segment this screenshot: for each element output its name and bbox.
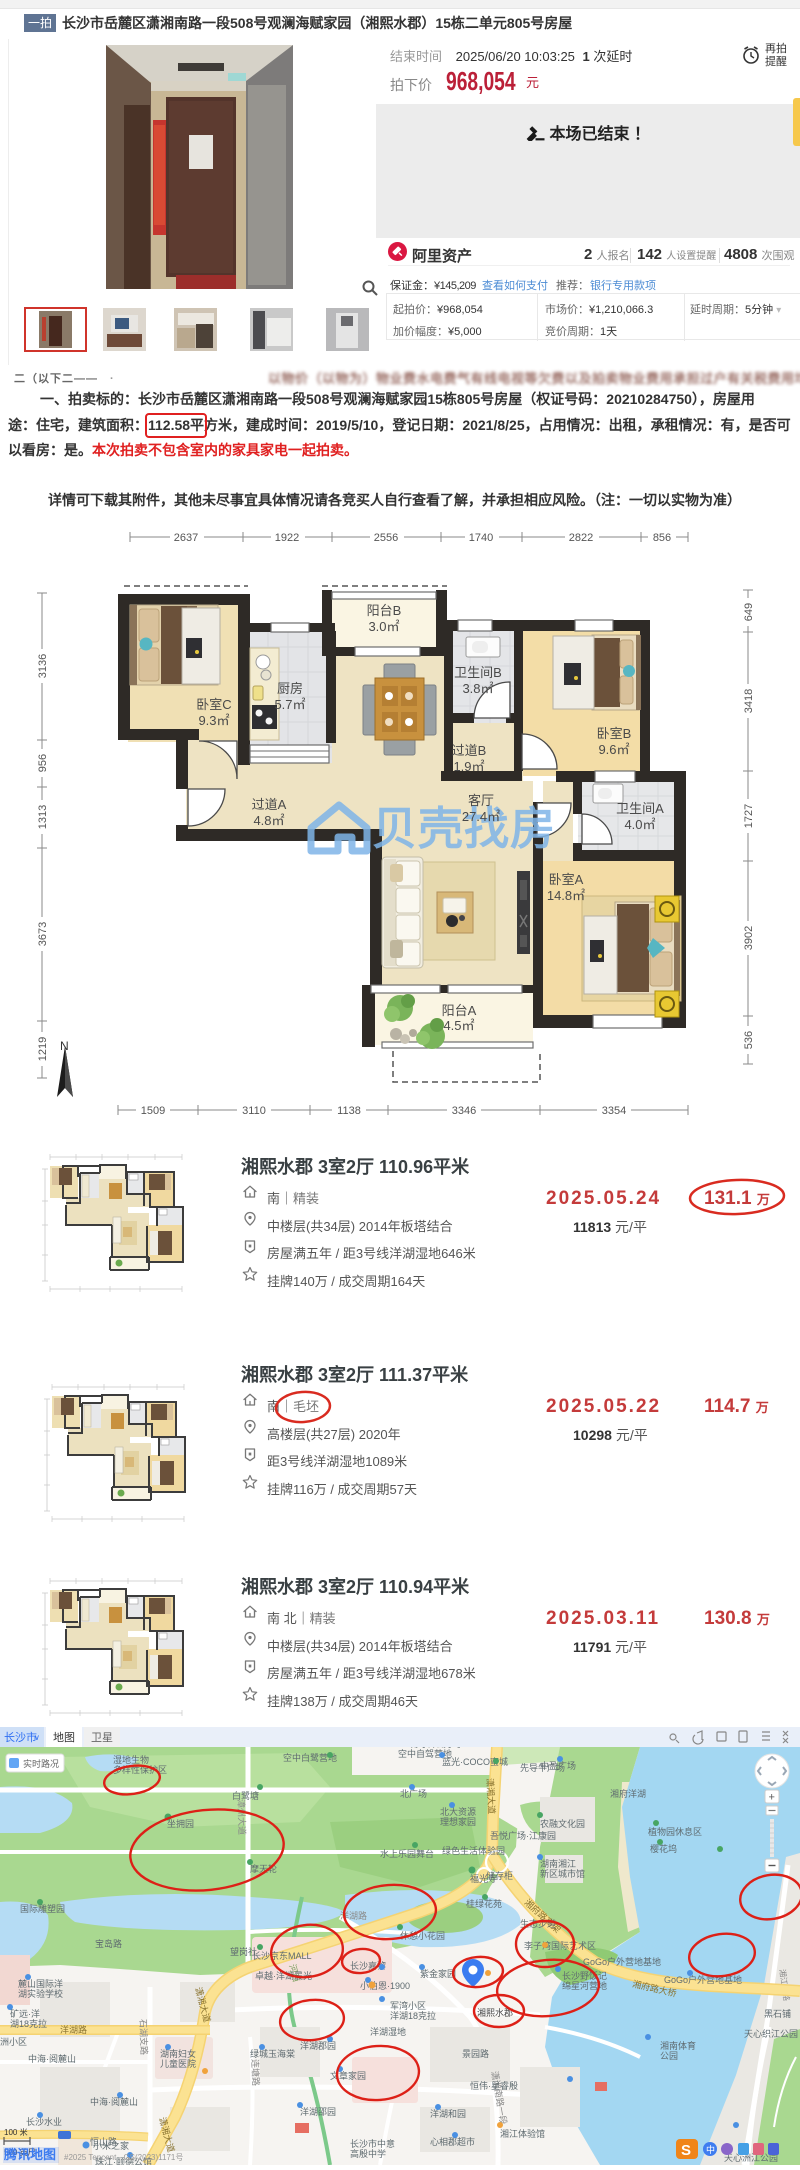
svg-text:绵星河营地: 绵星河营地 — [562, 1980, 607, 1991]
svg-text:恒山路: 恒山路 — [90, 2136, 117, 2147]
svg-text:+: + — [769, 1792, 775, 1804]
svg-text:131.1 万: 131.1 万 — [704, 1188, 770, 1209]
svg-text:3902: 3902 — [743, 926, 755, 950]
svg-text:114.7 万: 114.7 万 — [704, 1396, 769, 1417]
svg-text:10298 元/平: 10298 元/平 — [573, 1427, 648, 1443]
svg-text:军湾小区: 军湾小区 — [390, 2000, 426, 2011]
svg-text:9.3㎡: 9.3㎡ — [198, 713, 229, 728]
svg-text:湘熙水郡 3室2厅 110.94平米: 湘熙水郡 3室2厅 110.94平米 — [241, 1576, 470, 1597]
svg-text:3.8㎡: 3.8㎡ — [462, 681, 493, 696]
svg-text:卧室C: 卧室C — [196, 697, 231, 712]
svg-text:挂牌140万 / 成交周期164天: 挂牌140万 / 成交周期164天 — [267, 1274, 425, 1289]
svg-text:5.7㎡: 5.7㎡ — [274, 697, 305, 712]
svg-text:4.0㎡: 4.0㎡ — [624, 817, 655, 832]
svg-text:文章家园: 文章家园 — [330, 2070, 366, 2081]
svg-text:绿色生活体验园: 绿色生活体验园 — [442, 1845, 505, 1856]
svg-text:S: S — [681, 2142, 691, 2159]
svg-text:中: 中 — [706, 2144, 715, 2155]
svg-text:湖南妇女: 湖南妇女 — [160, 2048, 196, 2059]
svg-text:536: 536 — [743, 1031, 755, 1049]
svg-text:中海·阅麓山: 中海·阅麓山 — [90, 2096, 138, 2107]
svg-text:11791 元/平: 11791 元/平 — [573, 1639, 647, 1655]
svg-text:新区城市馆: 新区城市馆 — [540, 1868, 585, 1879]
svg-text:2637: 2637 — [174, 532, 198, 544]
svg-text:11813 元/平: 11813 元/平 — [573, 1219, 647, 1235]
svg-text:绿城玉海棠: 绿城玉海棠 — [250, 2048, 295, 2059]
svg-text:湘南体育: 湘南体育 — [660, 2040, 696, 2051]
svg-text:潇湘大道: 潇湘大道 — [485, 1778, 498, 1815]
svg-text:南｜毛坯: 南｜毛坯 — [267, 1399, 319, 1414]
svg-text:矿远·洋: 矿远·洋 — [10, 2008, 40, 2019]
svg-text:洲小区: 洲小区 — [0, 2037, 27, 2047]
svg-text:卫生间B: 卫生间B — [454, 665, 502, 680]
svg-text:∨: ∨ — [34, 1733, 40, 1742]
svg-text:湿地生物: 湿地生物 — [113, 1754, 149, 1765]
svg-text:中楼层(共34层) 2014年板塔结合: 中楼层(共34层) 2014年板塔结合 — [267, 1219, 453, 1234]
svg-text:洋湖18克拉: 洋湖18克拉 — [390, 2010, 436, 2021]
svg-text:1922: 1922 — [275, 532, 299, 544]
svg-text:湘府洋湖: 湘府洋湖 — [610, 1788, 646, 1799]
svg-text:GoGo户外营地基地: GoGo户外营地基地 — [583, 1956, 661, 1967]
svg-text:房屋满五年 / 距3号线洋湖湿地646米: 房屋满五年 / 距3号线洋湖湿地646米 — [267, 1246, 476, 1261]
svg-text:湘江体验馆: 湘江体验馆 — [500, 2128, 545, 2139]
svg-text:3110: 3110 — [242, 1105, 266, 1117]
svg-text:水上乐园舞台: 水上乐园舞台 — [380, 1848, 434, 1859]
svg-text:956: 956 — [37, 754, 49, 772]
svg-text:植物园休息区: 植物园休息区 — [648, 1826, 702, 1837]
svg-text:儿童医院: 儿童医院 — [160, 2058, 196, 2069]
svg-text:856: 856 — [653, 532, 671, 544]
svg-text:2822: 2822 — [569, 532, 593, 544]
svg-text:李子湾国际艺术区: 李子湾国际艺术区 — [524, 1940, 596, 1951]
svg-text:3354: 3354 — [602, 1105, 626, 1117]
svg-text:卫星: 卫星 — [91, 1731, 113, 1744]
svg-text:1509: 1509 — [141, 1105, 165, 1117]
svg-text:长沙野饭记: 长沙野饭记 — [562, 1970, 607, 1981]
svg-text:心相郡超市: 心相郡超市 — [430, 2136, 475, 2147]
svg-text:卧室A: 卧室A — [549, 872, 584, 887]
svg-text:黑石铺: 黑石铺 — [764, 2008, 791, 2019]
svg-text:理想家园: 理想家园 — [440, 1816, 476, 1827]
svg-text:洋湖和园: 洋湖和园 — [430, 2108, 466, 2119]
svg-text:湖南湘江: 湖南湘江 — [540, 1858, 576, 1869]
svg-text:2025.05.24: 2025.05.24 — [546, 1188, 661, 1209]
svg-text:南｜精装: 南｜精装 — [267, 1191, 319, 1206]
svg-text:高楼层(共27层) 2020年: 高楼层(共27层) 2020年 — [267, 1427, 401, 1442]
svg-text:公园: 公园 — [660, 2051, 678, 2061]
svg-text:3673: 3673 — [37, 922, 49, 946]
svg-text:1727: 1727 — [743, 804, 755, 828]
svg-text:储存柜: 储存柜 — [486, 1870, 513, 1881]
svg-text:1219: 1219 — [37, 1037, 49, 1061]
svg-text:中楼层(共34层) 2014年板塔结合: 中楼层(共34层) 2014年板塔结合 — [267, 1639, 453, 1654]
svg-text:3136: 3136 — [37, 654, 49, 678]
svg-text:2025.05.22: 2025.05.22 — [546, 1396, 661, 1417]
svg-text:1740: 1740 — [469, 532, 493, 544]
svg-text:房屋满五年 / 距3号线洋湖湿地678米: 房屋满五年 / 距3号线洋湖湿地678米 — [267, 1666, 476, 1681]
svg-text:洋湖路: 洋湖路 — [60, 2024, 87, 2035]
svg-text:4.5㎡: 4.5㎡ — [443, 1018, 474, 1033]
svg-text:客厅: 客厅 — [468, 793, 494, 808]
svg-text:3418: 3418 — [743, 689, 755, 713]
svg-text:吾悦广场·江康园: 吾悦广场·江康园 — [490, 1830, 556, 1841]
svg-text:130.8 万: 130.8 万 — [704, 1608, 770, 1629]
svg-text:100 米: 100 米 — [4, 2127, 28, 2137]
svg-text:高殷中学: 高殷中学 — [350, 2148, 386, 2159]
svg-text:1313: 1313 — [37, 805, 49, 829]
svg-text:恒伟·星睿殷: 恒伟·星睿殷 — [470, 2080, 518, 2091]
svg-text:北大资源: 北大资源 — [440, 1806, 476, 1817]
svg-text:过道A: 过道A — [252, 797, 287, 812]
svg-text:国际雕塑园: 国际雕塑园 — [20, 1903, 65, 1914]
svg-text:14.8㎡: 14.8㎡ — [547, 888, 585, 903]
svg-text:长沙市: 长沙市 — [4, 1730, 37, 1744]
svg-text:漳州大道: 漳州大道 — [236, 1799, 248, 1835]
svg-text:坐拥园: 坐拥园 — [167, 1818, 194, 1829]
svg-text:厨房: 厨房 — [277, 681, 303, 696]
svg-text:长沙京东MALL: 长沙京东MALL — [252, 1950, 312, 1961]
svg-text:卫生间A: 卫生间A — [616, 801, 664, 816]
svg-text:北广场: 北广场 — [400, 1788, 427, 1799]
svg-text:距3号线洋湖湿地1089米: 距3号线洋湖湿地1089米 — [267, 1454, 407, 1469]
svg-text:长沙市中意: 长沙市中意 — [350, 2138, 395, 2149]
svg-text:2556: 2556 — [374, 532, 398, 544]
svg-text:挂牌116万 / 成交周期57天: 挂牌116万 / 成交周期57天 — [267, 1482, 417, 1497]
svg-text:1138: 1138 — [337, 1105, 361, 1117]
svg-text:石湖支路: 石湖支路 — [138, 2019, 150, 2055]
svg-text:4.8㎡: 4.8㎡ — [253, 813, 284, 828]
svg-text:紫金家园: 紫金家园 — [420, 1968, 456, 1979]
svg-text:景园路: 景园路 — [462, 2048, 489, 2059]
svg-text:649: 649 — [743, 603, 755, 621]
svg-text:湘熙水郡 3室2厅 111.37平米: 湘熙水郡 3室2厅 111.37平米 — [241, 1364, 469, 1385]
svg-text:过道B: 过道B — [452, 743, 487, 758]
svg-text:#2025 Tencent - GS(2023)1171号: #2025 Tencent - GS(2023)1171号 — [64, 2153, 183, 2162]
svg-text:农融文化园: 农融文化园 — [540, 1818, 585, 1829]
svg-text:连塘路: 连塘路 — [250, 2059, 262, 2086]
svg-text:中盈广场: 中盈广场 — [540, 1760, 576, 1771]
svg-text:地图: 地图 — [53, 1731, 75, 1744]
svg-text:湘熙水郡 3室2厅 110.96平米: 湘熙水郡 3室2厅 110.96平米 — [241, 1156, 470, 1177]
svg-text:湖18克拉: 湖18克拉 — [10, 2018, 47, 2029]
svg-text:3346: 3346 — [452, 1105, 476, 1117]
svg-text:阳台B: 阳台B — [367, 603, 402, 618]
svg-text:宝岛路: 宝岛路 — [95, 1938, 122, 1949]
svg-text:中海·阅麓山: 中海·阅麓山 — [28, 2053, 76, 2064]
svg-text:长沙水业: 长沙水业 — [26, 2116, 62, 2127]
svg-text:麓山国际洋: 麓山国际洋 — [18, 1978, 63, 1989]
svg-text:9.6㎡: 9.6㎡ — [598, 742, 629, 757]
svg-text:洋湖湿地: 洋湖湿地 — [370, 2026, 406, 2037]
svg-text:1.9㎡: 1.9㎡ — [453, 759, 484, 774]
svg-text:3.0㎡: 3.0㎡ — [368, 619, 399, 634]
svg-text:阳台A: 阳台A — [442, 1003, 477, 1018]
svg-text:挂牌138万 / 成交周期46天: 挂牌138万 / 成交周期46天 — [267, 1694, 418, 1709]
svg-text:实时路况: 实时路况 — [23, 1758, 59, 1769]
svg-text:卧室B: 卧室B — [597, 726, 632, 741]
svg-text:27.4㎡: 27.4㎡ — [462, 809, 500, 824]
svg-text:南 北｜精装: 南 北｜精装 — [267, 1611, 336, 1626]
svg-text:天心织江公园: 天心织江公园 — [744, 2028, 798, 2039]
svg-text:樱花坞: 樱花坞 — [650, 1843, 677, 1854]
svg-text:白鹭塘: 白鹭塘 — [232, 1790, 259, 1801]
svg-text:洋湖邵园: 洋湖邵园 — [300, 2106, 336, 2117]
svg-text:2025.03.11: 2025.03.11 — [546, 1608, 660, 1629]
svg-text:湖实验学校: 湖实验学校 — [18, 1988, 63, 1999]
